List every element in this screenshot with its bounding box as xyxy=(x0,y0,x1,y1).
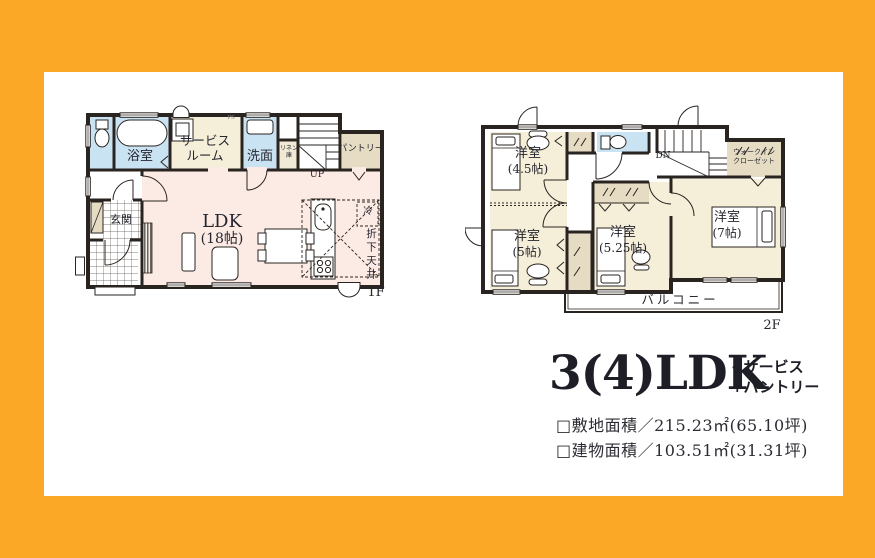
label-room45-size: (4.5帖) xyxy=(496,163,560,176)
pillow-7 xyxy=(762,211,772,242)
sofa xyxy=(212,247,238,280)
vanity-sink xyxy=(247,120,273,134)
site-area-text: □敷地面積／215.23㎡(65.10坪) xyxy=(556,412,808,436)
chair-5-seat xyxy=(527,264,549,278)
dining-chair xyxy=(258,233,266,244)
floor-plan-1f xyxy=(75,105,395,305)
building-area-text: □建物面積／103.51㎡(31.31坪) xyxy=(556,437,808,461)
label-ldk-name: LDK xyxy=(192,212,252,231)
label-room5-name: 洋室 xyxy=(495,230,559,244)
dining-table xyxy=(265,229,307,263)
stove xyxy=(314,257,333,276)
label-service-2: ルーム xyxy=(175,149,235,162)
label-ps: PS xyxy=(224,116,238,122)
burner xyxy=(325,260,330,265)
pillow-45 xyxy=(496,137,515,145)
label-entrance: 玄関 xyxy=(104,214,138,226)
label-stairs-up: UP xyxy=(306,170,328,180)
label-dropped-ceiling: 折下天井 xyxy=(362,228,376,282)
label-room525-size: (5.25帖) xyxy=(591,242,655,255)
burner xyxy=(325,267,330,272)
faucet xyxy=(321,207,324,210)
label-wic-2: クローゼット xyxy=(725,158,783,165)
closet-525 xyxy=(593,182,649,203)
dining-chair xyxy=(306,250,314,261)
bathtub xyxy=(117,120,167,146)
label-washroom: 洗面 xyxy=(240,150,280,164)
toilet-bowl-2f xyxy=(610,136,626,149)
dining-chair xyxy=(306,233,314,244)
label-bath: 浴室 xyxy=(120,150,160,164)
label-fridge: 冷 xyxy=(360,207,376,217)
label-room7-size: (7帖) xyxy=(696,227,758,240)
label-floor-2f: 2F xyxy=(758,319,786,333)
label-balcony: バルコニー xyxy=(630,293,730,306)
plan-extra-pantry: +パントリー xyxy=(731,376,819,397)
label-stairs-down: DN xyxy=(652,152,674,162)
tv-board xyxy=(143,223,152,273)
room-ldk xyxy=(142,170,380,285)
label-room525-name: 洋室 xyxy=(591,226,655,240)
label-wic-1: ウォークイン xyxy=(725,149,783,156)
toilet-bowl-1f xyxy=(95,129,109,147)
pillow-525 xyxy=(601,275,620,283)
plan-extra-service: +サービス xyxy=(731,356,804,377)
page-background: 浴室 サービス ルーム 洗面 リネン 庫 パントリー PS UP 玄関 LDK … xyxy=(0,0,875,558)
label-linen-2: 庫 xyxy=(278,153,300,159)
label-pantry: パントリー xyxy=(336,145,386,155)
label-floor-1f: 1F xyxy=(362,286,390,300)
chair-525 xyxy=(634,265,649,270)
toilet-tank-2f xyxy=(601,136,610,149)
meter-box xyxy=(76,257,85,275)
closet-middle xyxy=(567,232,592,290)
burner xyxy=(317,267,322,272)
label-ldk-size: (18帖) xyxy=(192,232,252,247)
porch-step xyxy=(95,287,135,295)
chair-5 xyxy=(529,279,547,285)
closet-45 xyxy=(568,132,592,153)
label-room45-name: 洋室 xyxy=(496,147,560,161)
label-room7-name: 洋室 xyxy=(696,211,758,225)
dining-chair xyxy=(258,250,266,261)
pillow-5 xyxy=(495,275,513,283)
label-room5-size: (5帖) xyxy=(495,246,559,259)
toilet-tank-1f xyxy=(96,120,108,129)
label-service-1: サービス xyxy=(175,134,235,147)
